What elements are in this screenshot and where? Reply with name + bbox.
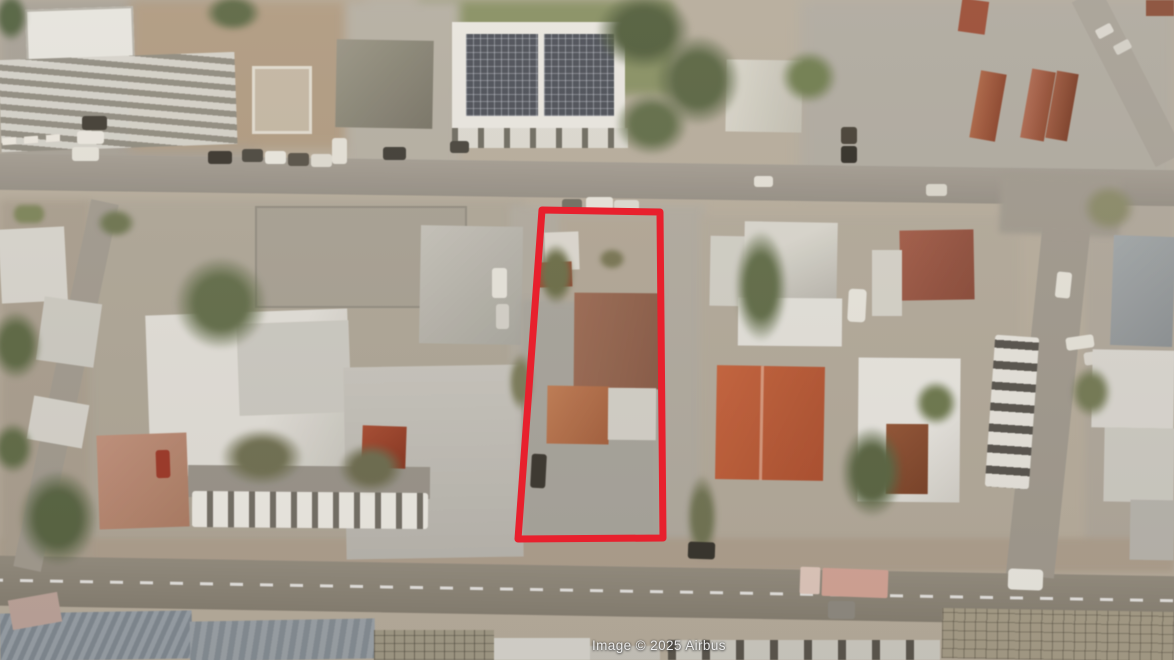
solar-building-facade — [452, 128, 628, 148]
parcel-roof-white — [608, 388, 656, 440]
car-row-b — [265, 151, 286, 164]
rb-orange-roof — [715, 365, 825, 481]
shrub-junction — [1082, 184, 1136, 232]
parcel-shrub-b — [598, 248, 626, 270]
tree-k — [18, 470, 98, 566]
car-tl-b — [77, 131, 104, 144]
west-house-a — [0, 226, 68, 303]
tree-m — [734, 230, 788, 342]
car-parcel-top-a — [586, 197, 613, 210]
tree-o — [914, 380, 958, 426]
parcel-car-dark — [530, 454, 547, 489]
van-white — [332, 138, 347, 164]
rb-van — [847, 289, 867, 323]
car-row-d — [311, 154, 332, 167]
grass-tuft — [14, 205, 44, 223]
car-dark-pair-b — [841, 146, 857, 163]
tree-r — [96, 208, 136, 238]
rb-red-house — [899, 229, 974, 300]
east-building-blue — [1110, 235, 1174, 347]
scene-layers — [0, 0, 1174, 660]
tree-i — [338, 443, 404, 493]
truck-cab — [800, 567, 821, 595]
imagery-copyright-watermark: Image © 2025 Airbus — [592, 638, 726, 653]
car-white-road — [926, 184, 947, 196]
tree-n — [840, 426, 904, 518]
car-bottom-white — [1008, 568, 1044, 590]
car-alley-b — [496, 304, 509, 329]
satellite-map-view: Image © 2025 Airbus — [0, 0, 1174, 660]
car-row-c — [288, 153, 309, 166]
tree-d — [780, 50, 838, 104]
container-e — [1146, 0, 1174, 16]
tree-h — [220, 428, 304, 486]
tree-g — [174, 256, 268, 350]
truck-trailer — [822, 568, 889, 598]
rb-white-small — [872, 250, 902, 316]
car-bottom-gray — [828, 601, 855, 619]
roof-grid-b — [942, 608, 1174, 660]
car-dark-pair-a — [841, 127, 857, 144]
roof-corrugated-b — [190, 618, 376, 660]
shrub-parcel-west — [508, 352, 534, 412]
parcel-roof-orange — [546, 385, 609, 444]
tree-j — [0, 310, 42, 380]
tree-q — [1070, 366, 1112, 418]
west-house-c — [27, 395, 90, 448]
parked-cars-row — [192, 491, 428, 529]
car-bottom-dark — [688, 542, 716, 560]
tree-l — [0, 422, 34, 474]
parcel-main-roof — [574, 293, 661, 390]
parcel-shrub-a — [538, 243, 574, 305]
roof-grid-a — [374, 630, 494, 660]
tree-f — [0, 0, 28, 42]
east-white-b — [1103, 427, 1174, 502]
building-tan — [252, 66, 312, 134]
container-a — [958, 0, 989, 35]
car-dark-c — [208, 151, 232, 164]
solar-panel-left — [466, 34, 538, 116]
tree-e — [204, 0, 262, 32]
car-alley-a — [492, 268, 507, 298]
car-red — [156, 450, 171, 478]
building-salmon — [96, 432, 189, 529]
car-white-ne — [754, 176, 773, 187]
car-parcel-top-c — [562, 199, 582, 210]
roof-white-b — [494, 638, 590, 660]
car-row-a — [242, 149, 263, 162]
car-tl-c — [72, 147, 99, 161]
car-dark-b — [450, 141, 469, 153]
car-road-white — [1055, 271, 1073, 298]
car-dark-a — [383, 147, 406, 160]
east-gray-c — [1129, 500, 1174, 561]
west-house-b — [36, 296, 102, 367]
building-darkroof — [335, 39, 434, 129]
tree-c — [615, 92, 689, 156]
car-tl-a — [82, 116, 107, 130]
car-parcel-top-b — [614, 200, 639, 212]
